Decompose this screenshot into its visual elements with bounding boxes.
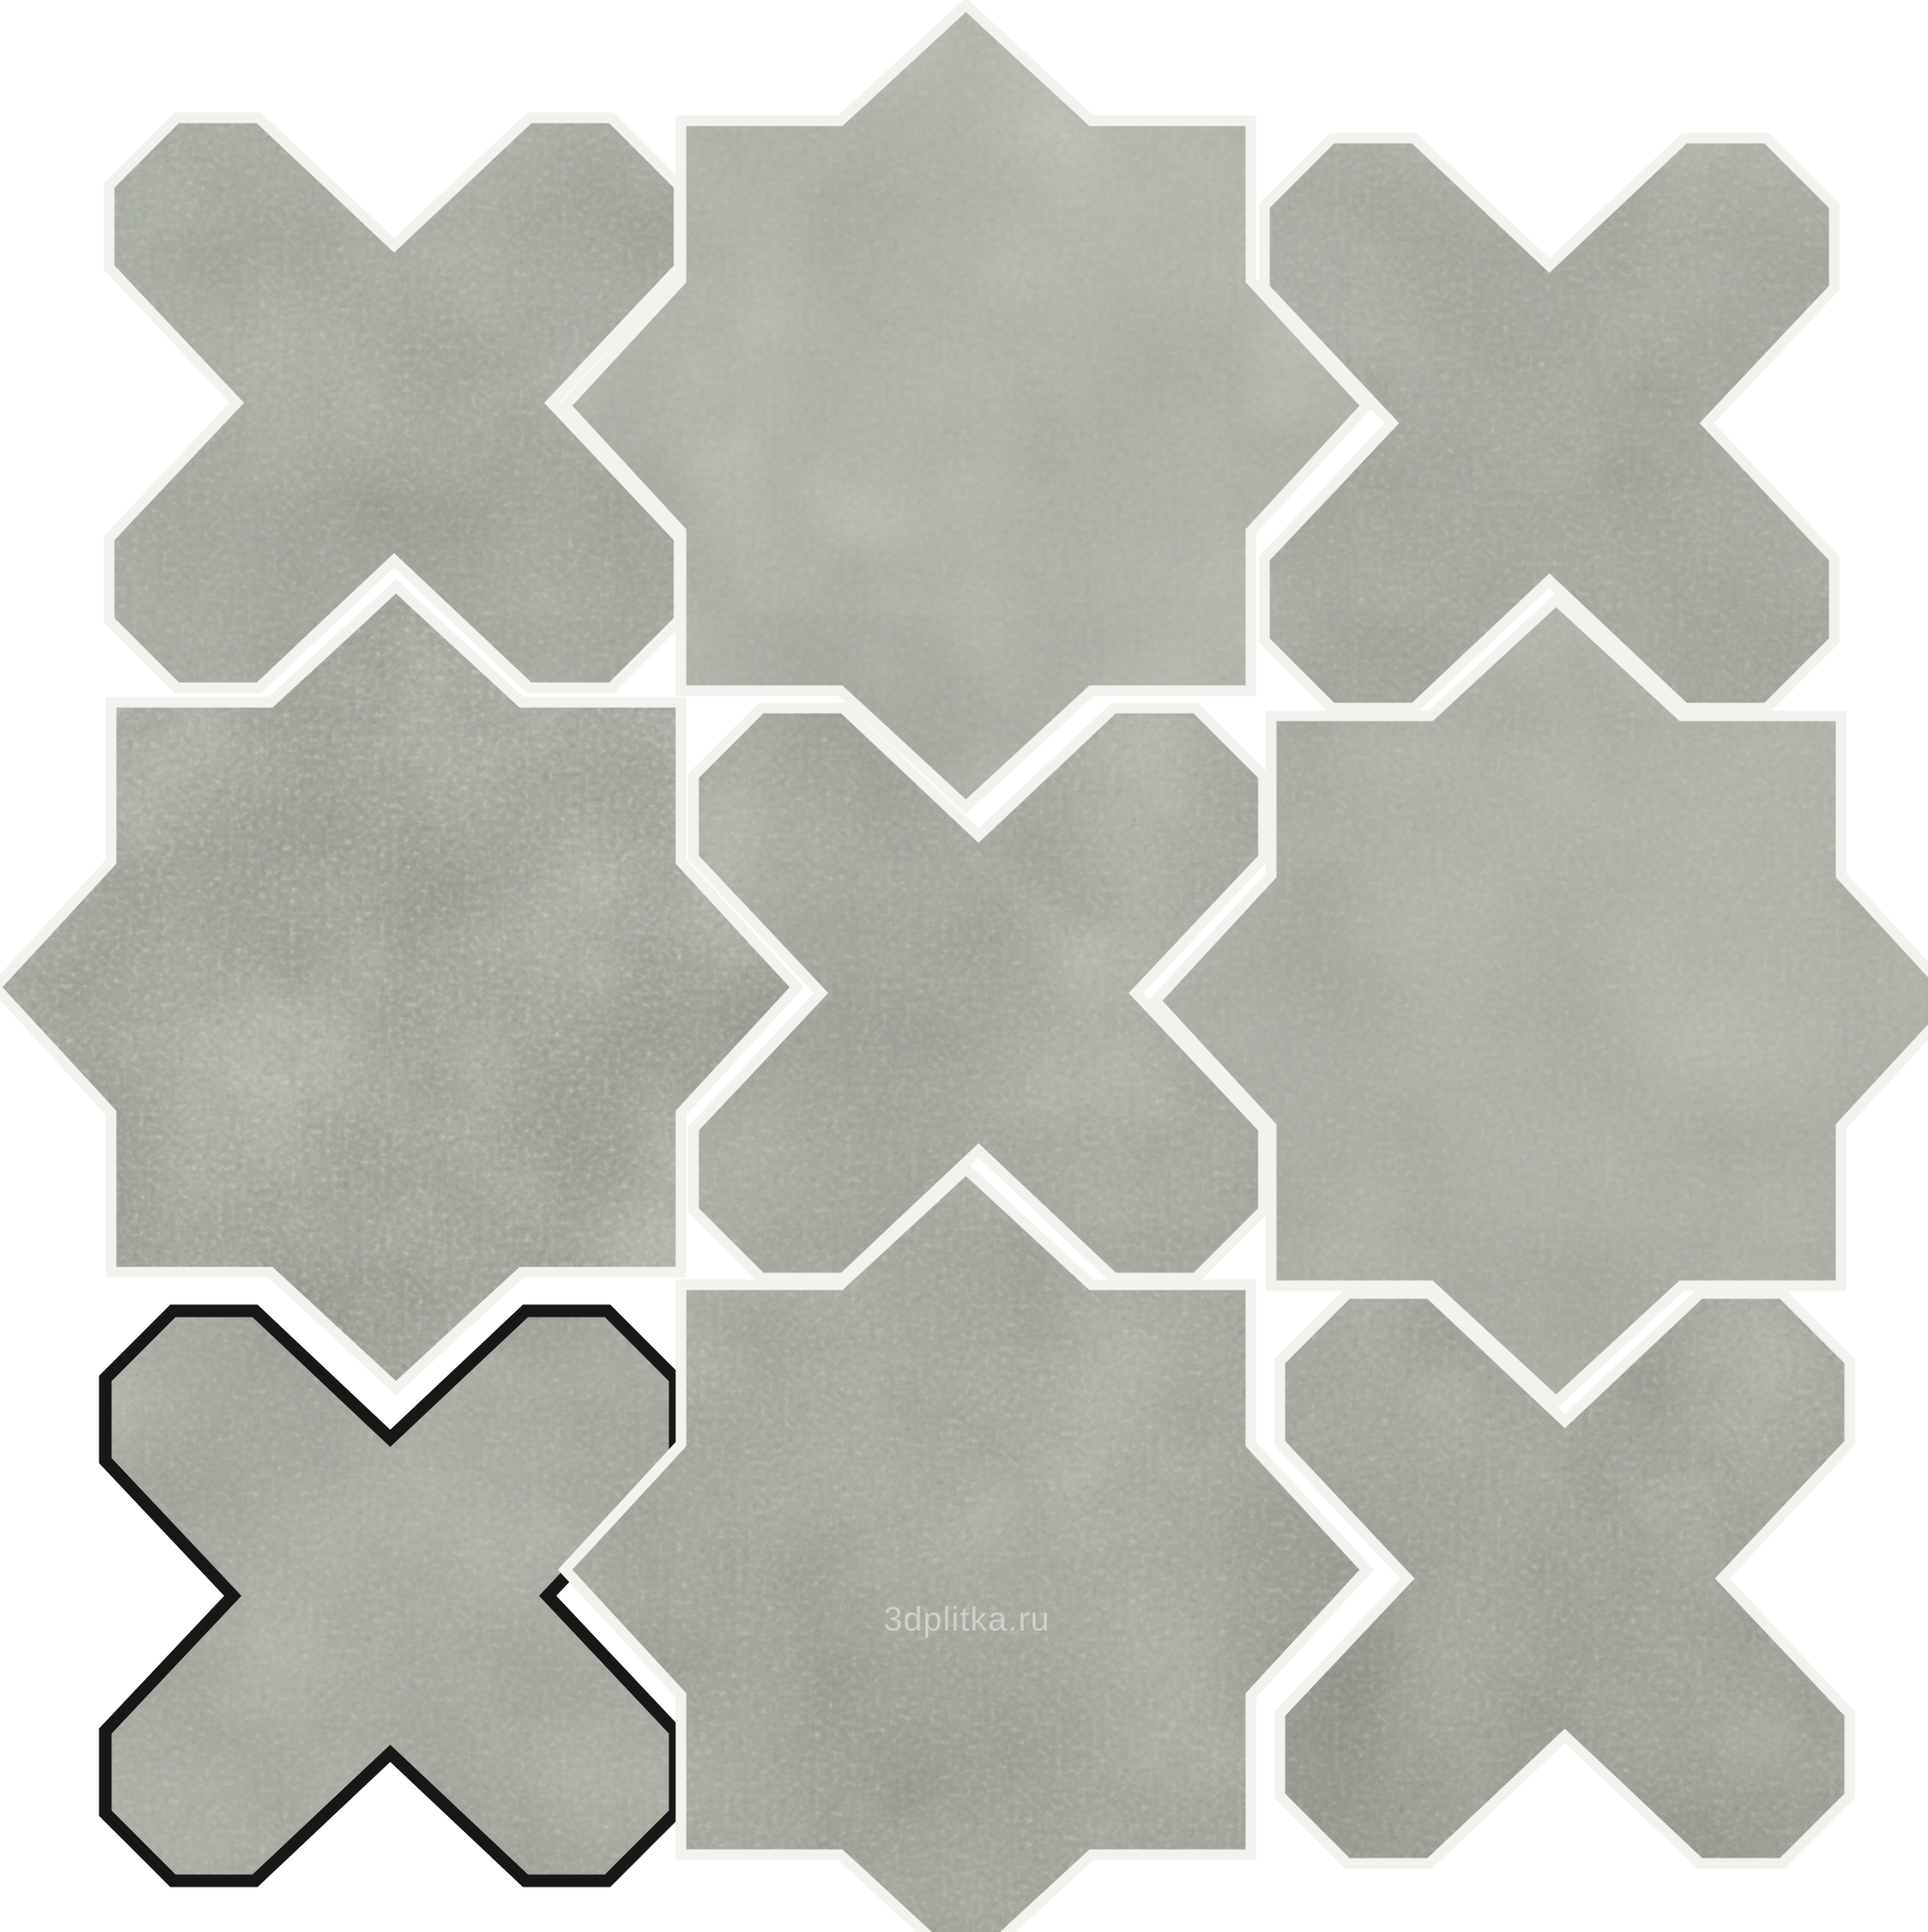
watermark-text: 3dplitka.ru: [884, 1601, 1050, 1638]
tile-pattern-svg: 3dplitka.ru: [0, 0, 1928, 1932]
tile-panel-photo: 3dplitka.ru: [0, 0, 1928, 1932]
tiles-layer: [0, 5, 1928, 1932]
